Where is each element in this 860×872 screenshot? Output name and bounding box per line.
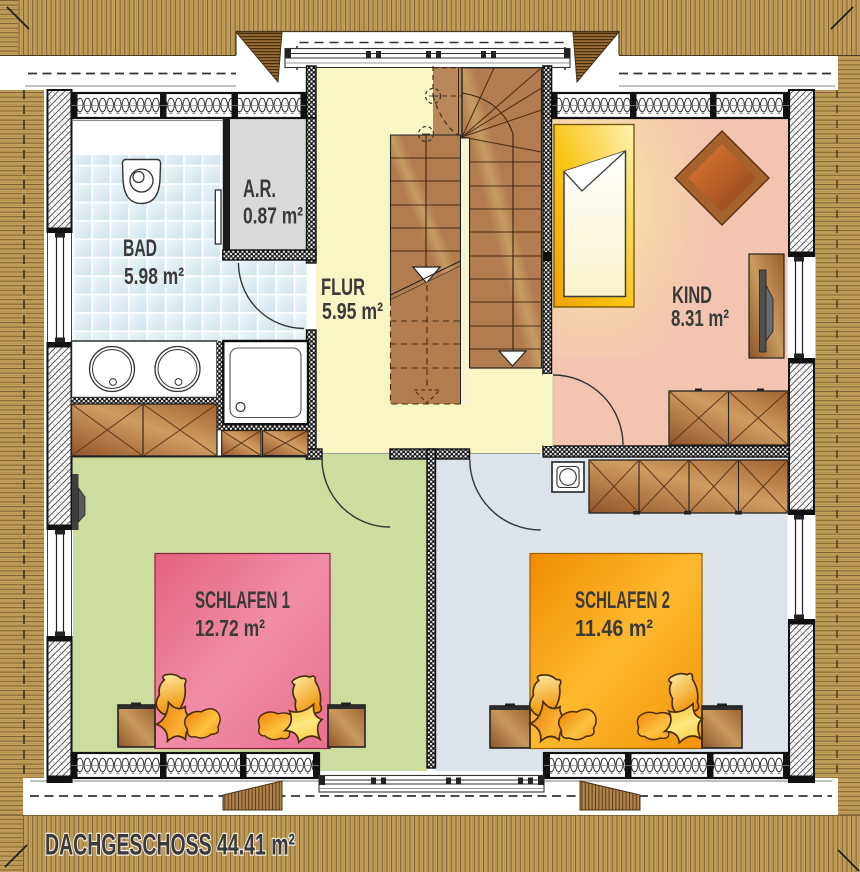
svg-text:0.87 m²: 0.87 m² xyxy=(243,203,303,229)
svg-text:FLUR: FLUR xyxy=(321,274,365,301)
svg-text:A.R.: A.R. xyxy=(243,175,276,203)
svg-text:SCHLAFEN 2: SCHLAFEN 2 xyxy=(575,587,670,614)
svg-text:12.72 m²: 12.72 m² xyxy=(195,615,265,641)
svg-text:8.31 m²: 8.31 m² xyxy=(671,305,729,331)
svg-text:5.98 m²: 5.98 m² xyxy=(124,263,184,289)
svg-text:5.95 m²: 5.95 m² xyxy=(322,298,383,324)
svg-text:11.46 m²: 11.46 m² xyxy=(575,615,653,641)
svg-text:DACHGESCHOSS 44.41 m²: DACHGESCHOSS 44.41 m² xyxy=(45,829,295,862)
svg-text:SCHLAFEN 1: SCHLAFEN 1 xyxy=(195,587,290,614)
svg-text:BAD: BAD xyxy=(123,235,157,262)
